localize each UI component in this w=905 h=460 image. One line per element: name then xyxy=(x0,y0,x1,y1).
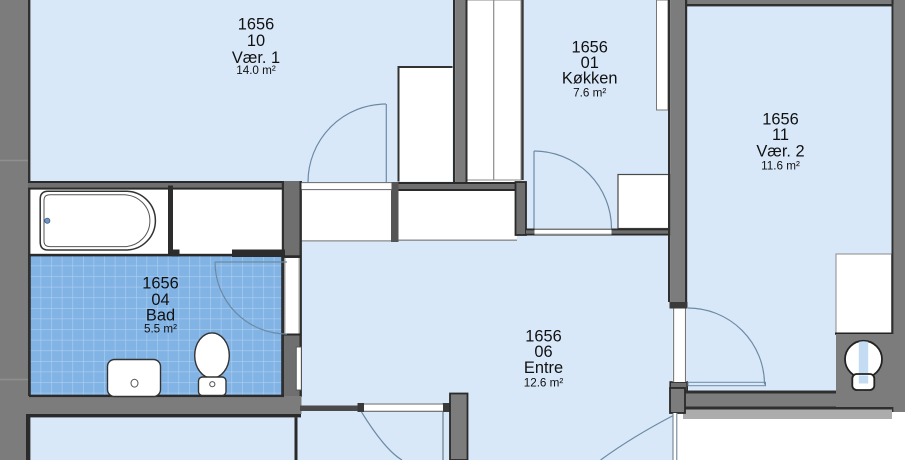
svg-text:12.6 m²: 12.6 m² xyxy=(524,377,564,390)
svg-text:11.6 m²: 11.6 m² xyxy=(761,160,800,173)
svg-text:Vær. 2: Vær. 2 xyxy=(756,143,804,161)
svg-text:Køkken: Køkken xyxy=(562,70,618,88)
svg-text:7.6 m²: 7.6 m² xyxy=(573,87,606,100)
svg-text:10: 10 xyxy=(247,32,265,50)
svg-text:11: 11 xyxy=(772,126,789,144)
svg-text:1656: 1656 xyxy=(238,16,274,34)
svg-text:14.0 m²: 14.0 m² xyxy=(236,64,276,77)
svg-text:Entre: Entre xyxy=(524,359,563,377)
svg-text:5.5 m²: 5.5 m² xyxy=(144,323,177,336)
svg-text:1656: 1656 xyxy=(142,275,178,293)
